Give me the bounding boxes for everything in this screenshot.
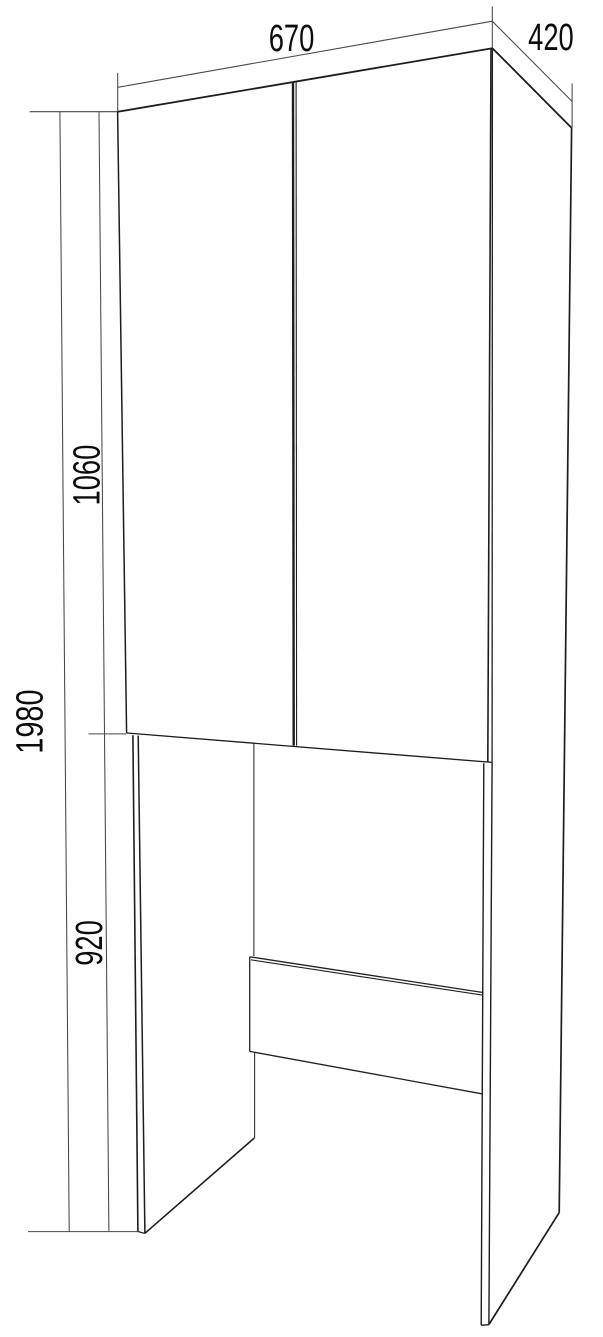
svg-text:1980: 1980: [9, 689, 52, 753]
svg-text:420: 420: [528, 17, 574, 59]
svg-text:1060: 1060: [66, 445, 108, 506]
svg-text:670: 670: [269, 18, 315, 60]
svg-text:920: 920: [69, 920, 111, 966]
